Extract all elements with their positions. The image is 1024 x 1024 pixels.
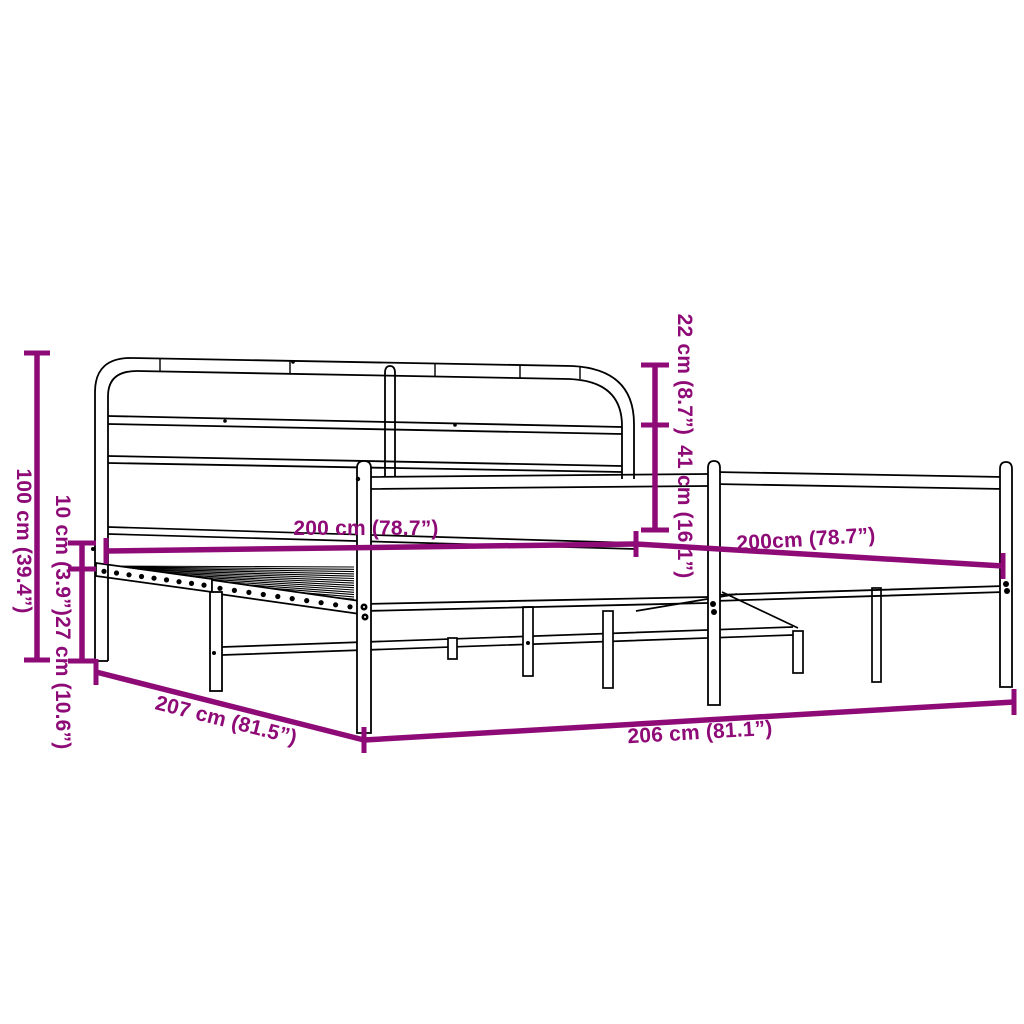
dim-label-thickness-and-clearance: 10 cm (3.9”)27 cm (10.6”) [50,495,74,750]
dimension-lines [24,353,1014,753]
dim-label-headboard-top: 22 cm (8.7”) [673,314,696,435]
support-legs [448,588,881,688]
dim-label-headboard-sections: 22 cm (8.7”)41 cm (16.1”) [672,314,696,579]
bed-frame-drawing [0,0,1024,1024]
dim-label-bed-length: 200 cm (78.7”) [293,517,438,541]
dim-label-headboard-lower: 41 cm (16.1”) [673,445,696,578]
rear-left-leg [210,592,222,691]
dim-label-under-bed-clearance: 27 cm (10.6”) [51,616,74,749]
dim-label-frame-thickness: 10 cm (3.9”) [51,495,74,616]
depth-207-line [96,659,364,753]
dim-label-overall-height: 100 cm (39.4”) [11,468,35,613]
height-22-41-line [641,365,669,530]
dimension-diagram: 100 cm (39.4”) 10 cm (3.9”)27 cm (10.6”)… [0,0,1024,1024]
